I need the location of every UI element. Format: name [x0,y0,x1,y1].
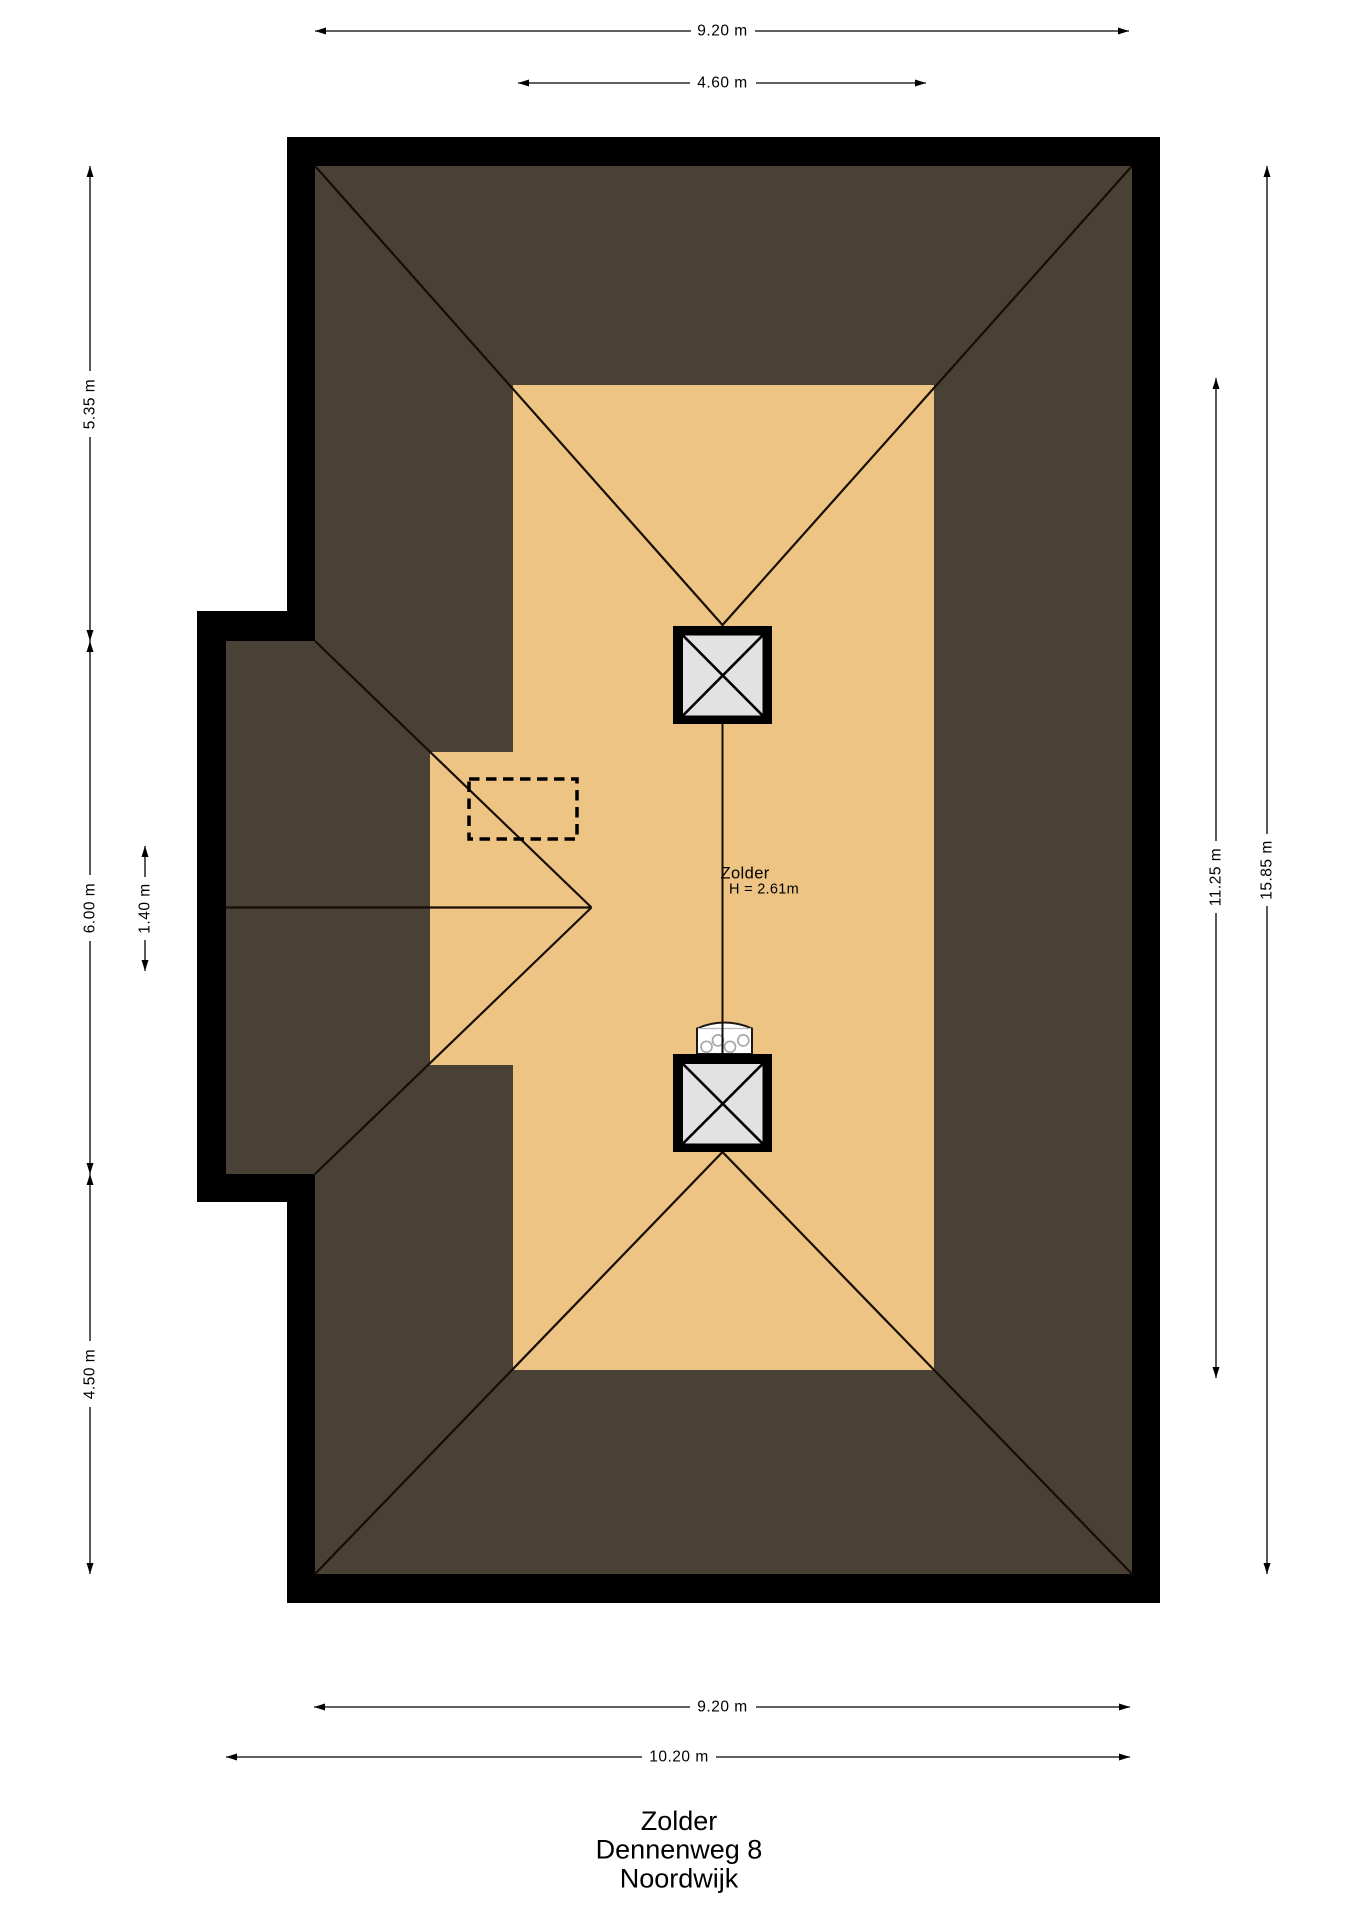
svg-text:9.20 m: 9.20 m [697,1699,747,1716]
svg-text:9.20 m: 9.20 m [697,23,747,40]
svg-text:6.00 m: 6.00 m [82,883,99,933]
svg-text:4.50 m: 4.50 m [82,1349,99,1399]
svg-text:H = 2.61m: H = 2.61m [729,882,799,898]
svg-text:15.85 m: 15.85 m [1259,840,1276,900]
svg-text:1.40 m: 1.40 m [137,883,154,933]
svg-text:Dennenweg 8: Dennenweg 8 [596,1835,763,1865]
svg-text:5.35 m: 5.35 m [82,379,99,429]
svg-text:Zolder: Zolder [641,1806,718,1836]
svg-text:10.20 m: 10.20 m [649,1749,709,1766]
svg-text:4.60 m: 4.60 m [697,75,747,92]
svg-text:Zolder: Zolder [721,865,770,883]
svg-text:Noordwijk: Noordwijk [620,1864,739,1894]
svg-text:11.25 m: 11.25 m [1208,848,1225,906]
